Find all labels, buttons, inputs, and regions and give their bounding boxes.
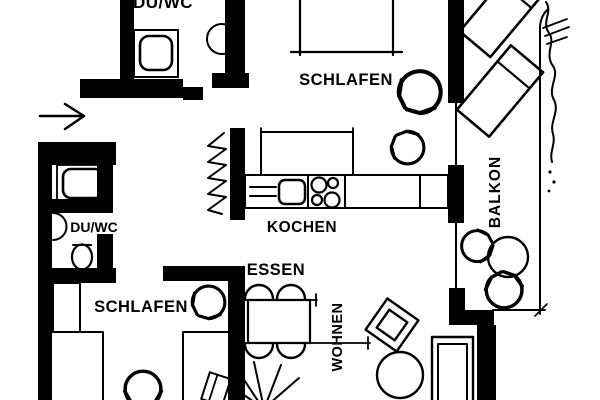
room-label-bedroom-top: SCHLAFEN [299,71,393,89]
table-ticks [239,294,370,349]
floor-plan: DU/WC SCHLAFEN BALKON KOCHEN DU/WC SCHLA… [0,0,600,400]
washbasin-drain [225,38,228,41]
door-swing-arrow-icon [125,371,162,400]
room-label-kitchen: KOCHEN [267,219,337,236]
hatch-marks [208,133,226,214]
room-label-balcony: BALKON [487,156,504,228]
room-label-living: WOHNEN [330,302,346,371]
dining-chairs [245,285,305,358]
wall [80,79,183,98]
lounge-chair [457,45,543,136]
lounge-chair [460,0,545,57]
walls [38,0,496,400]
wall [212,73,249,88]
dining-set [239,285,370,358]
door-swing-arrow-icon [384,124,431,171]
room-label-dining: ESSEN [247,261,305,279]
door-swing-arrow-icon [185,279,232,326]
exterior-wall [448,0,464,103]
washbasin [53,213,67,240]
kitchen-cabinet [261,132,353,175]
squiggle-dots [548,170,556,192]
wall [225,0,245,74]
plant [201,362,299,400]
toilet [72,245,92,270]
armchair [366,299,419,352]
stove [312,178,340,208]
wall [183,87,203,100]
room-label-bath-top: DU/WC [133,0,193,12]
wardrobe [53,283,80,332]
sofa-seat [438,344,467,400]
dining-table [248,300,310,343]
bed [291,0,402,55]
door-swing-arrow-icon [389,62,449,122]
exterior-wall [448,165,464,223]
sink [279,180,305,204]
bed [52,332,103,400]
room-label-bedroom-lower: SCHLAFEN [94,298,188,316]
room-label-bath-lower: DU/WC [70,219,117,235]
bathroom-top [134,24,237,77]
wall [40,268,116,283]
balcony-area [457,0,569,316]
kitchen-counter [245,128,448,208]
wall [230,128,245,220]
drainer-lines [250,187,276,196]
floor-plan-drawing: DU/WC SCHLAFEN BALKON KOCHEN DU/WC SCHLA… [0,0,600,400]
room-labels: DU/WC SCHLAFEN BALKON KOCHEN DU/WC SCHLA… [70,0,504,372]
planter-line [209,375,218,400]
bed [183,332,228,400]
entrance-arrow-icon [40,104,84,129]
counter [245,175,448,208]
washing-machine-drum [140,36,172,70]
coffee-table [377,352,423,398]
exterior-wall [449,310,494,325]
wall [120,0,134,79]
exterior-wall [477,325,496,400]
